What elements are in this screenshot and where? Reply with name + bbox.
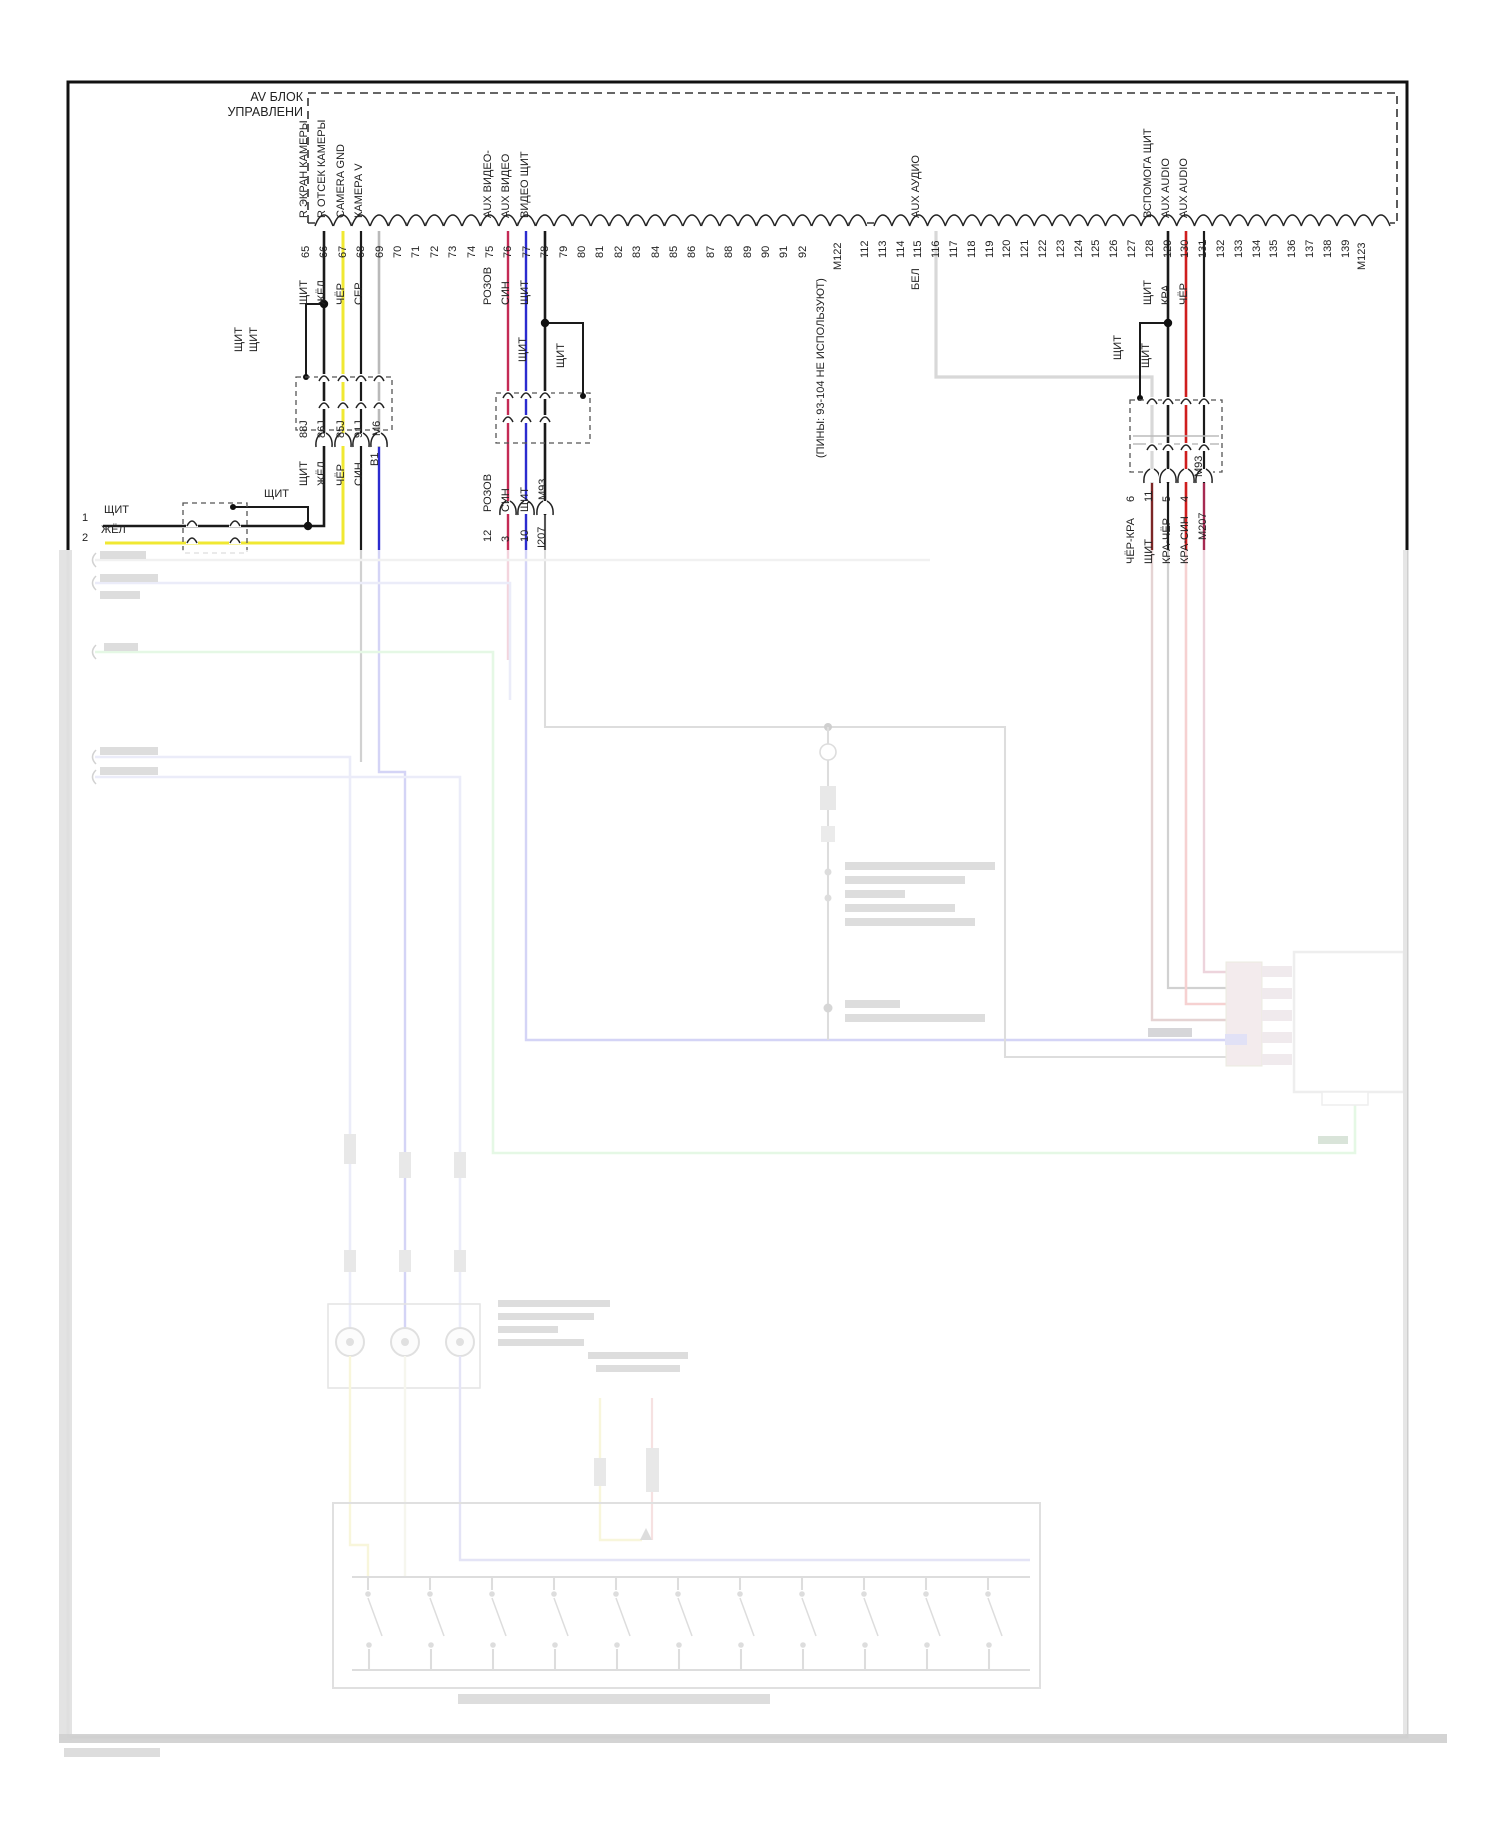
shield-bypass-label: ЩИТ — [264, 488, 289, 500]
wire-label-lower: ЧЁР-КРА — [1124, 518, 1138, 564]
signal-name-65: R ЭКРАН КАМЕРЫ — [297, 120, 311, 218]
connector-m123: М123 — [1355, 242, 1369, 270]
pin-number: 75 — [483, 246, 497, 258]
connector-i207: I207 — [535, 527, 549, 548]
pin-number: 83 — [630, 246, 644, 258]
pin-number: 72 — [428, 246, 442, 258]
pin-number: 76 — [501, 246, 515, 258]
signal-name-130: AUX AUDIO — [1177, 158, 1191, 218]
pin-number: 87 — [704, 246, 718, 258]
wire-label-lower: ЖЁЛ — [315, 461, 329, 486]
pin-number: 120 — [1000, 240, 1014, 258]
glyph — [1159, 469, 1177, 482]
terminal-91j: 91J — [352, 420, 366, 438]
pin-number: 74 — [465, 246, 479, 258]
junction-dot — [304, 522, 312, 530]
connector-m6: М6 — [370, 421, 384, 436]
pin-number-lower: 12 — [481, 530, 495, 542]
pin-number-lower: 11 — [1142, 491, 1156, 502]
pin-number: 77 — [520, 246, 534, 258]
signal-name-76: AUX ВИДЕО — [499, 154, 513, 218]
pin-number: 128 — [1143, 240, 1157, 258]
pin-number: 84 — [649, 246, 663, 258]
pin-number: 112 — [858, 240, 872, 258]
pin-number: 79 — [557, 246, 571, 258]
wire-label-75: РОЗОВ — [481, 267, 495, 305]
connector-body-lines — [1133, 436, 1219, 444]
pin-number: 131 — [1196, 240, 1210, 258]
wire-shield-left — [103, 231, 324, 526]
wire-label-lower: ЩИТ — [518, 487, 532, 512]
shield-bypass-left-upper — [306, 304, 324, 377]
unit-title-line1: AV БЛОК — [195, 90, 303, 105]
pin-number: 80 — [575, 246, 589, 258]
signal-name-115: AUX АУДИО — [909, 155, 923, 218]
shield-bypass-left-lower — [233, 507, 308, 526]
connector-m122: М122 — [831, 242, 845, 270]
pin-number: 116 — [929, 240, 943, 258]
pin-number: 92 — [796, 246, 810, 258]
pin-number: 90 — [759, 246, 773, 258]
wire-label-128: ЩИТ — [1141, 280, 1155, 305]
wire-label-76: СИН — [499, 281, 513, 305]
shield-bypass-label: ЩИТ — [232, 327, 246, 352]
unit-title: AV БЛОК УПРАВЛЕНИ — [195, 90, 303, 119]
wire-label-lower: СИН — [352, 462, 366, 486]
pin-number: 129 — [1161, 240, 1175, 258]
pin-number: 81 — [593, 246, 607, 258]
pin-number: 130 — [1178, 240, 1192, 258]
wire-label-lower: ЧЁР — [334, 464, 348, 486]
connector-m207: М207 — [1196, 512, 1210, 540]
pin-number: 86 — [685, 246, 699, 258]
wire-label-66: ЖЁЛ — [315, 280, 329, 305]
pin-number: 78 — [538, 246, 552, 258]
pin-number: 127 — [1125, 240, 1139, 258]
pin-number: 115 — [911, 240, 925, 258]
wire-label-68: СЕР — [352, 282, 366, 305]
wire-label-lower: ЩИТ — [297, 461, 311, 486]
wire-label-lower: ЩИТ — [1142, 539, 1156, 564]
glyph — [1143, 469, 1161, 482]
shield-bypass-label: ЩИТ — [1111, 335, 1125, 360]
signal-name-128: ВСПОМОГА ЩИТ — [1141, 128, 1155, 218]
wire-label-lower: КРА-ЧЁР — [1160, 518, 1174, 564]
wire-label-129: КРА — [1159, 285, 1173, 305]
shield-bypass-label: ЩИТ — [516, 337, 530, 362]
wire-label-67: ЧЁР — [334, 283, 348, 305]
pin-number-lower: 4 — [1178, 496, 1192, 502]
pin-number: 85 — [667, 246, 681, 258]
pin-number: 68 — [354, 246, 368, 258]
camera-pin-2: 2 — [82, 532, 88, 544]
pin-number: 122 — [1036, 240, 1050, 258]
wire-label-lower: КРА-СИН — [1178, 516, 1192, 564]
unit-title-line2: УПРАВЛЕНИ — [195, 105, 303, 120]
signal-name-66: R ОТСЕК КАМЕРЫ — [315, 120, 329, 218]
pin-number-lower: 5 — [1160, 496, 1174, 502]
signal-name-68: КАМЕРА V — [352, 163, 366, 218]
shield-bypass-label: ЩИТ — [247, 327, 261, 352]
shield-bypass-label: ЩИТ — [1139, 343, 1153, 368]
pin-number: 117 — [947, 240, 961, 258]
av-unit-box — [308, 93, 1397, 223]
camera-pin-1-wire: ЩИТ — [104, 504, 129, 516]
junction-dot — [541, 319, 549, 327]
wire-label-77: ЩИТ — [518, 280, 532, 305]
pin-number: 139 — [1339, 240, 1353, 258]
pin-number: 91 — [777, 246, 791, 258]
connector-b1: B1 — [368, 453, 382, 466]
pin-number: 119 — [983, 240, 997, 258]
pin-number: 134 — [1250, 240, 1264, 258]
shield-bypass-label: ЩИТ — [554, 343, 568, 368]
wire-label-lower: СИН — [499, 488, 513, 512]
terminal-86j: 86J — [315, 420, 329, 438]
wire-label-65: ЩИТ — [297, 280, 311, 305]
junction-dot — [1164, 319, 1172, 327]
camera-pin-2-wire: ЖЁЛ — [101, 524, 126, 536]
inline-connector-camera — [183, 503, 247, 553]
wire-yellow-left — [105, 231, 343, 543]
connector-m93: М93 — [536, 479, 550, 500]
pin-number: 137 — [1303, 240, 1317, 258]
signal-name-75: AUX ВИДЕО- — [481, 150, 495, 218]
glyph — [536, 501, 554, 514]
pin-number: 132 — [1214, 240, 1228, 258]
pin-number: 82 — [612, 246, 626, 258]
junction-dot — [580, 393, 586, 399]
signal-name-129: AUX AUDIO — [1159, 158, 1173, 218]
wire-label-130: ЧЁР — [1177, 283, 1191, 305]
terminal-85j: 85J — [334, 420, 348, 438]
signal-name-67: CAMERA GND — [334, 144, 348, 218]
pin-number: 70 — [391, 246, 405, 258]
pin-number: 67 — [336, 246, 350, 258]
faded-bottom-border — [59, 1734, 1447, 1743]
pin-number: 89 — [741, 246, 755, 258]
pin-number: 118 — [965, 240, 979, 258]
wiring-diagram-canvas — [0, 0, 1500, 1828]
pin-number: 136 — [1285, 240, 1299, 258]
connector-m93: М93 — [1192, 456, 1206, 477]
pin-number: 126 — [1107, 240, 1121, 258]
pin-number: 73 — [446, 246, 460, 258]
faded-right-border — [1403, 550, 1407, 1734]
pin-number-lower: 3 — [499, 536, 513, 542]
pin-number: 135 — [1267, 240, 1281, 258]
pin-number: 66 — [317, 246, 331, 258]
junction-dot — [230, 504, 236, 510]
faded-left-border — [59, 550, 72, 1740]
pin-number: 71 — [409, 246, 423, 258]
pin-number: 65 — [299, 246, 313, 258]
pin-number: 133 — [1232, 240, 1246, 258]
camera-pin-1: 1 — [82, 512, 88, 524]
pin-number: 114 — [894, 240, 908, 258]
pin-number: 138 — [1321, 240, 1335, 258]
wiring-diagram-page: AV БЛОК УПРАВЛЕНИ (ПИНЫ: 93-104 НЕ ИСПОЛ… — [0, 0, 1500, 1828]
unused-pins-note: (ПИНЫ: 93-104 НЕ ИСПОЛЬЗУЮТ) — [814, 278, 828, 458]
pin-number: 121 — [1018, 240, 1032, 258]
pin-number: 123 — [1054, 240, 1068, 258]
pin-number: 69 — [373, 246, 387, 258]
pin-number: 124 — [1072, 240, 1086, 258]
fade-overlay — [0, 550, 1500, 1828]
pin-number-lower: 10 — [518, 530, 532, 542]
signal-name-77: ВИДЕО ЩИТ — [518, 151, 532, 218]
wire-label-115: БЕЛ — [909, 268, 923, 290]
pin-number: 125 — [1089, 240, 1103, 258]
terminal-88j: 88J — [297, 420, 311, 438]
wire-label-lower: РОЗОВ — [481, 474, 495, 512]
pin-number: 88 — [722, 246, 736, 258]
pin-number: 113 — [876, 240, 890, 258]
pin-number-lower: 6 — [1124, 496, 1138, 502]
